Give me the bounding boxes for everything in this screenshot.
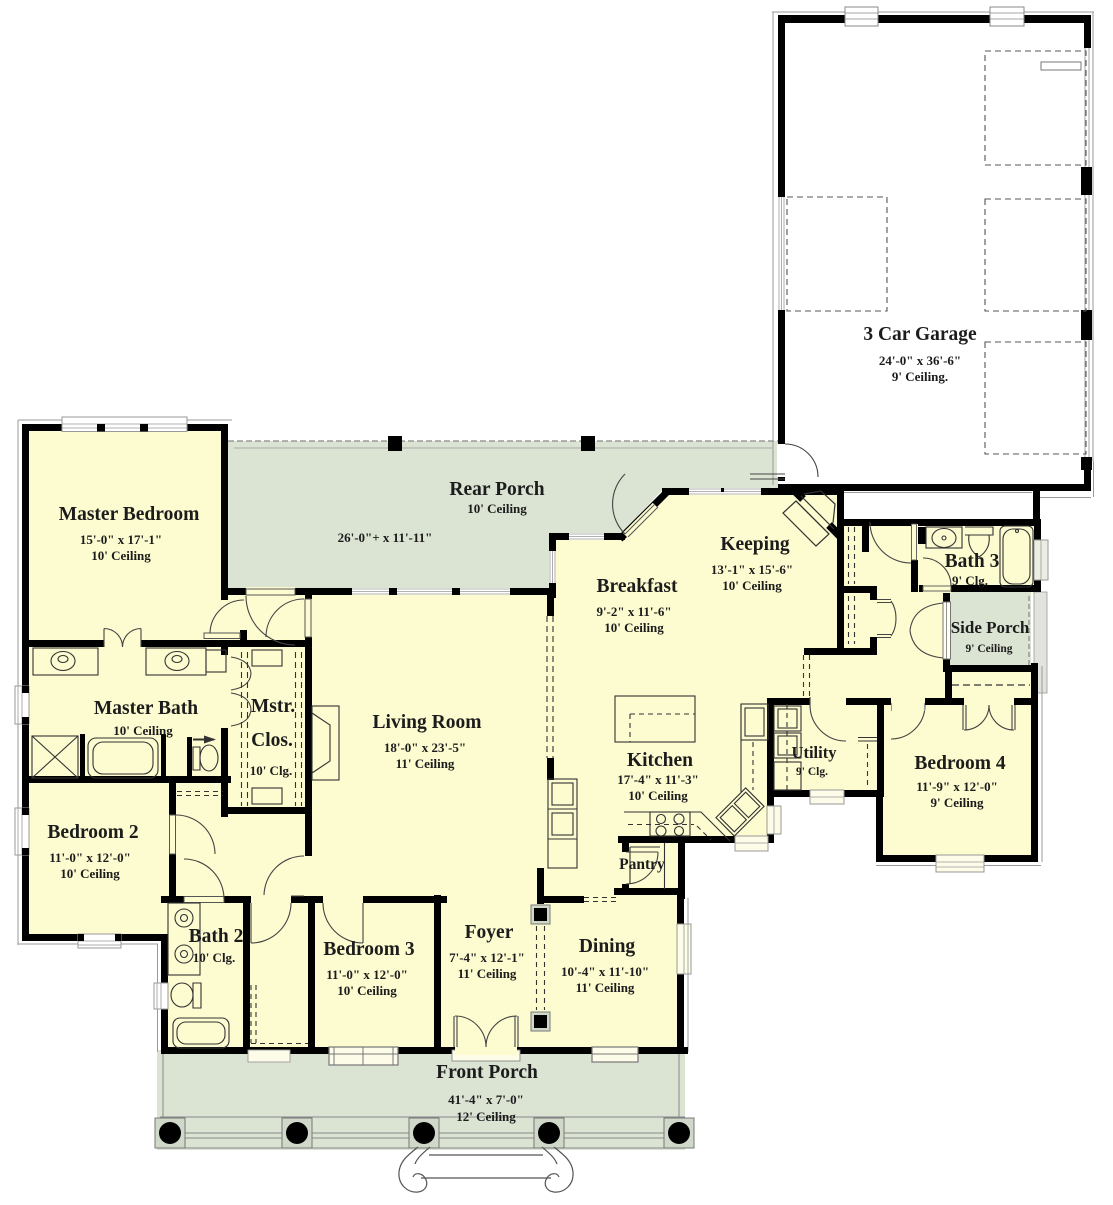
svg-text:10' Ceiling: 10' Ceiling xyxy=(628,788,688,803)
svg-text:Bath 2: Bath 2 xyxy=(189,926,244,947)
svg-text:9' Clg.: 9' Clg. xyxy=(952,573,988,588)
svg-text:26'-0"+ x 11'-11": 26'-0"+ x 11'-11" xyxy=(338,530,433,545)
svg-text:11'-0" x 12'-0": 11'-0" x 12'-0" xyxy=(49,850,131,865)
svg-text:Bedroom 2: Bedroom 2 xyxy=(47,822,138,843)
svg-text:15'-0" x 17'-1": 15'-0" x 17'-1" xyxy=(80,532,162,547)
svg-text:10' Ceiling: 10' Ceiling xyxy=(91,548,151,563)
svg-text:11'-0" x 12'-0": 11'-0" x 12'-0" xyxy=(326,967,408,982)
svg-text:Living Room: Living Room xyxy=(373,712,482,733)
svg-text:10' Ceiling: 10' Ceiling xyxy=(337,983,397,998)
svg-text:11' Ceiling: 11' Ceiling xyxy=(458,966,517,981)
svg-text:18'-0" x 23'-5": 18'-0" x 23'-5" xyxy=(384,740,466,755)
svg-text:Breakfast: Breakfast xyxy=(597,576,678,597)
svg-text:Side Porch: Side Porch xyxy=(951,618,1030,637)
svg-text:Master Bedroom: Master Bedroom xyxy=(59,504,200,525)
svg-text:Mstr.: Mstr. xyxy=(251,696,295,717)
svg-text:11'-9" x 12'-0": 11'-9" x 12'-0" xyxy=(916,779,998,794)
svg-text:9' Ceiling: 9' Ceiling xyxy=(966,643,1013,655)
svg-text:Bedroom 3: Bedroom 3 xyxy=(323,939,414,960)
svg-text:10' Ceiling: 10' Ceiling xyxy=(60,866,120,881)
svg-text:Bedroom 4: Bedroom 4 xyxy=(914,753,1005,774)
svg-text:9' Ceiling.: 9' Ceiling. xyxy=(892,369,948,384)
svg-text:11' Ceiling: 11' Ceiling xyxy=(396,756,455,771)
svg-text:Keeping: Keeping xyxy=(720,534,790,555)
svg-text:11' Ceiling: 11' Ceiling xyxy=(576,980,635,995)
svg-text:Dining: Dining xyxy=(579,936,636,957)
svg-text:10' Ceiling: 10' Ceiling xyxy=(722,578,782,593)
svg-text:9'-2" x 11'-6": 9'-2" x 11'-6" xyxy=(596,604,671,619)
svg-text:10' Clg.: 10' Clg. xyxy=(250,763,293,778)
svg-text:Bath 3: Bath 3 xyxy=(945,551,1000,572)
svg-text:Utility: Utility xyxy=(792,743,838,762)
svg-text:24'-0" x 36'-6": 24'-0" x 36'-6" xyxy=(879,353,961,368)
svg-text:10' Ceiling: 10' Ceiling xyxy=(604,620,664,635)
svg-text:10' Ceiling: 10' Ceiling xyxy=(113,723,173,738)
svg-text:13'-1" x 15'-6": 13'-1" x 15'-6" xyxy=(711,562,793,577)
svg-text:Foyer: Foyer xyxy=(465,922,514,943)
svg-text:Pantry: Pantry xyxy=(619,856,665,873)
svg-text:9' Ceiling: 9' Ceiling xyxy=(930,795,984,810)
svg-text:7'-4" x 12'-1": 7'-4" x 12'-1" xyxy=(449,950,525,965)
svg-text:Clos.: Clos. xyxy=(251,730,293,751)
svg-text:Kitchen: Kitchen xyxy=(627,750,693,771)
svg-text:10'-4" x 11'-10": 10'-4" x 11'-10" xyxy=(561,964,649,979)
svg-text:17'-4" x 11'-3": 17'-4" x 11'-3" xyxy=(617,772,699,787)
svg-text:3 Car Garage: 3 Car Garage xyxy=(863,324,977,345)
svg-text:Front Porch: Front Porch xyxy=(436,1062,538,1083)
svg-text:12' Ceiling: 12' Ceiling xyxy=(456,1109,516,1124)
svg-text:Master Bath: Master Bath xyxy=(94,698,198,719)
svg-text:Rear Porch: Rear Porch xyxy=(449,479,544,500)
svg-text:41'-4" x 7'-0": 41'-4" x 7'-0" xyxy=(448,1092,524,1107)
svg-text:10' Clg.: 10' Clg. xyxy=(193,950,236,965)
svg-text:10' Ceiling: 10' Ceiling xyxy=(467,501,527,516)
svg-text:9' Clg.: 9' Clg. xyxy=(796,766,828,778)
